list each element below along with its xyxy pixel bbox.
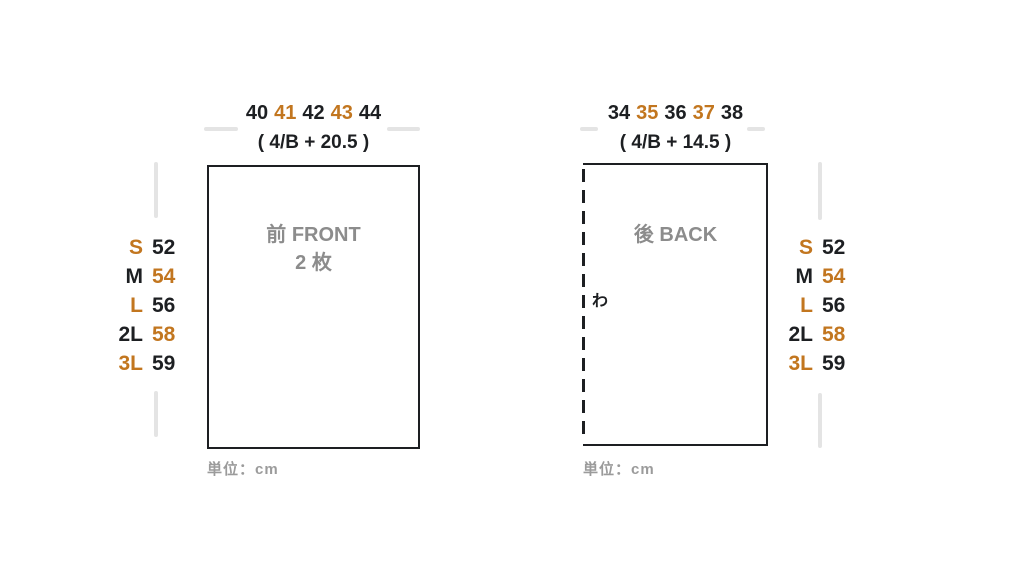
back-piece-name: 後 BACK <box>583 221 768 249</box>
sewing-pattern-diagram: 4041424344 ( 4/B + 20.5 ) 3435363738 ( 4… <box>0 0 1024 577</box>
size-row: 3L59 <box>105 349 194 378</box>
size-value: 58 <box>822 320 864 349</box>
dimension-line <box>154 391 158 437</box>
back-size-table: S52 M54 L56 2L58 3L59 <box>775 233 864 378</box>
fold-dashed-edge <box>582 169 585 441</box>
size-value: 58 <box>152 320 194 349</box>
front-piece-name: 前 FRONT <box>207 221 420 249</box>
size-label: S <box>775 233 813 262</box>
front-piece-rect <box>207 165 420 449</box>
size-value: 59 <box>822 349 864 378</box>
dimension-tick <box>204 127 238 131</box>
size-label: S <box>105 233 143 262</box>
size-row: 2L58 <box>105 320 194 349</box>
size-label: 2L <box>105 320 143 349</box>
front-width-value: 40 <box>246 102 268 124</box>
dimension-tick <box>747 127 765 131</box>
front-width-value: 44 <box>359 102 381 124</box>
back-width-value: 34 <box>608 102 630 124</box>
front-piece-label: 前 FRONT 2 枚 <box>207 221 420 277</box>
front-piece-count: 2 枚 <box>207 249 420 277</box>
size-label: M <box>775 262 813 291</box>
back-width-values: 3435363738 <box>583 101 768 125</box>
front-width-formula: ( 4/B + 20.5 ) <box>207 131 420 155</box>
size-value: 56 <box>152 291 194 320</box>
size-row: S52 <box>775 233 864 262</box>
dimension-line <box>818 162 822 220</box>
front-width-value: 43 <box>331 102 353 124</box>
dimension-line <box>154 162 158 218</box>
back-unit-note: 単位：cm <box>583 458 655 479</box>
back-width-value: 36 <box>664 102 686 124</box>
dimension-tick <box>580 127 598 131</box>
fold-label: わ <box>592 293 608 311</box>
front-size-table: S52 M54 L56 2L58 3L59 <box>105 233 194 378</box>
size-row: L56 <box>105 291 194 320</box>
front-width-value: 42 <box>302 102 324 124</box>
dimension-line <box>818 393 822 448</box>
size-row: M54 <box>105 262 194 291</box>
size-label: M <box>105 262 143 291</box>
size-label: L <box>105 291 143 320</box>
front-width-value: 41 <box>274 102 296 124</box>
back-width-formula: ( 4/B + 14.5 ) <box>583 131 768 155</box>
back-piece-rect <box>583 163 768 446</box>
front-width-values: 4041424344 <box>207 101 420 125</box>
size-row: S52 <box>105 233 194 262</box>
size-row: L56 <box>775 291 864 320</box>
size-row: M54 <box>775 262 864 291</box>
back-width-value: 37 <box>693 102 715 124</box>
size-row: 3L59 <box>775 349 864 378</box>
size-value: 54 <box>152 262 194 291</box>
size-label: 3L <box>775 349 813 378</box>
size-value: 56 <box>822 291 864 320</box>
size-label: L <box>775 291 813 320</box>
size-row: 2L58 <box>775 320 864 349</box>
front-unit-note: 単位：cm <box>207 458 279 479</box>
size-value: 52 <box>152 233 194 262</box>
size-value: 59 <box>152 349 194 378</box>
back-width-value: 38 <box>721 102 743 124</box>
size-value: 54 <box>822 262 864 291</box>
dimension-tick <box>387 127 420 131</box>
back-piece-label: 後 BACK <box>583 221 768 249</box>
size-label: 2L <box>775 320 813 349</box>
size-label: 3L <box>105 349 143 378</box>
back-width-value: 35 <box>636 102 658 124</box>
size-value: 52 <box>822 233 864 262</box>
